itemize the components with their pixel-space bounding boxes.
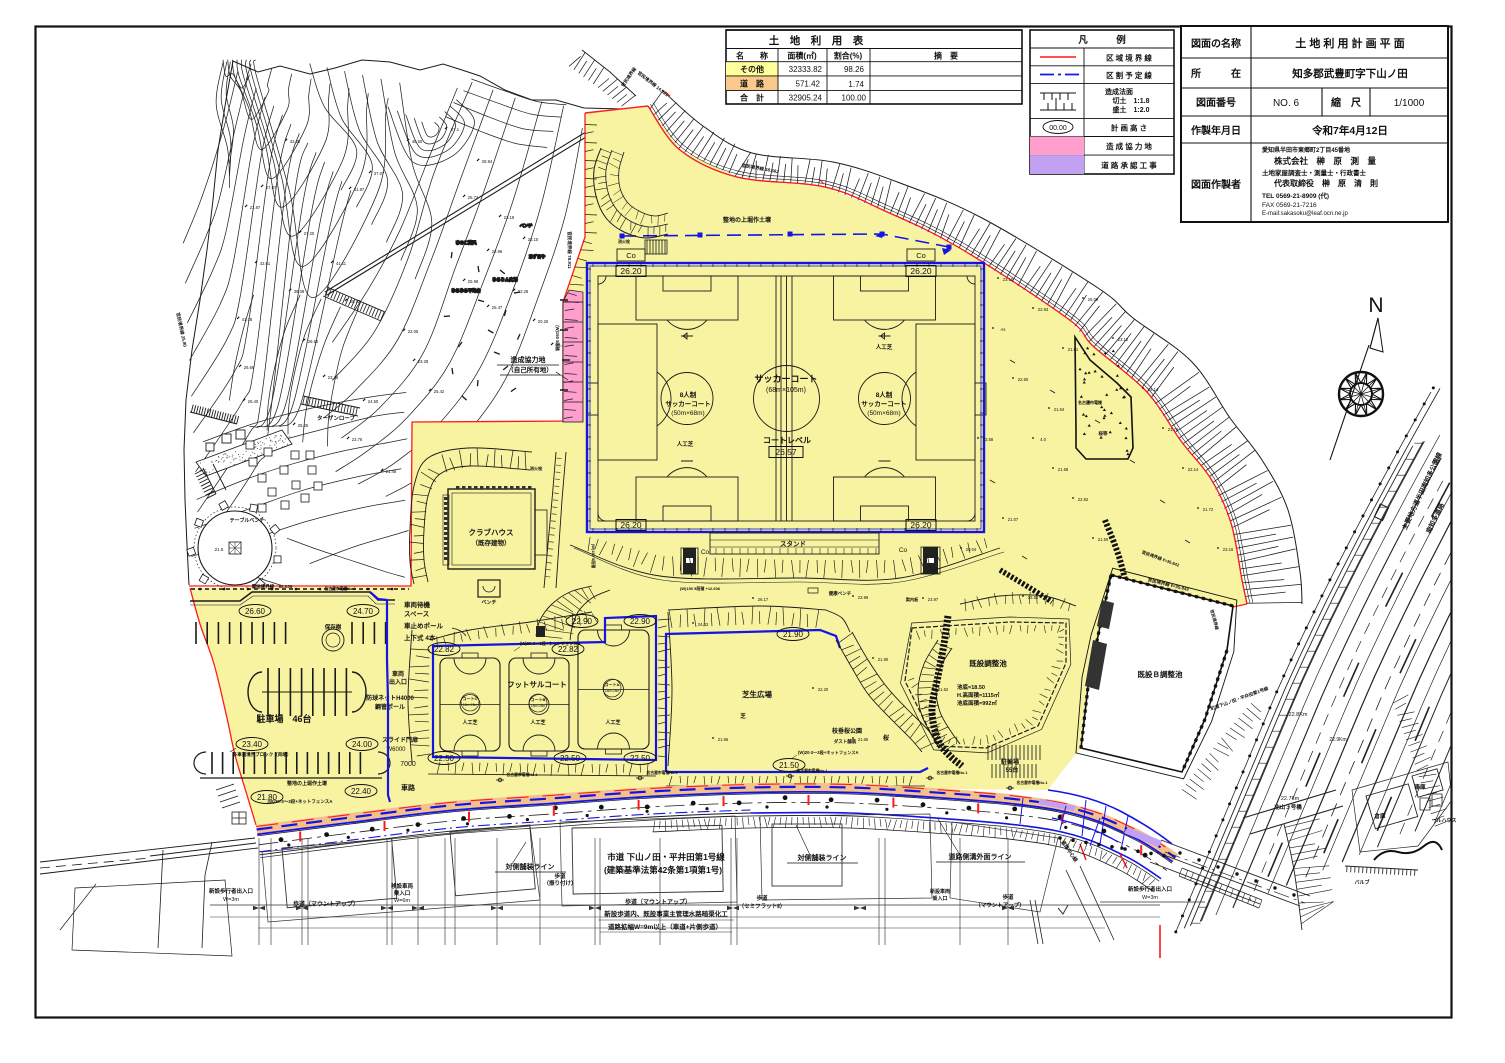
svg-text:面積(㎡): 面積(㎡) — [787, 51, 817, 61]
svg-text:スペース: スペース — [404, 610, 429, 618]
svg-text:作製年月日: 作製年月日 — [1191, 124, 1241, 137]
svg-text:TEL 0569-21-8909 (代): TEL 0569-21-8909 (代) — [1262, 191, 1329, 200]
svg-text:区 割 予 定 線: 区 割 予 定 線 — [1106, 70, 1152, 80]
svg-text:N: N — [1368, 294, 1383, 317]
svg-text:18m×28m: 18m×28m — [531, 704, 546, 708]
svg-text:名古屋市電棚: 名古屋市電棚 — [1078, 399, 1102, 405]
svg-text:27.1: 27.1 — [451, 127, 460, 132]
svg-text:縮 尺: 縮 尺 — [1331, 96, 1361, 109]
svg-text:新設歩行者出入口: 新設歩行者出入口 — [209, 887, 253, 895]
svg-text:整地の上堀作土壌: 整地の上堀作土壌 — [722, 216, 772, 224]
svg-text:E-mail:sakasoku@leaf.ocn.ne.jp: E-mail:sakasoku@leaf.ocn.ne.jp — [1262, 211, 1348, 217]
svg-text:コートB: コートB — [531, 697, 546, 702]
svg-text:クラブハウス: クラブハウス — [469, 527, 514, 537]
svg-text:鋼管ポール: 鋼管ポール — [374, 703, 405, 711]
svg-text:代表取締役 榊 原 清 則: 代表取締役 榊 原 清 則 — [1273, 178, 1378, 188]
svg-text:23.28: 23.28 — [418, 359, 429, 364]
svg-text:H.高面積=1115㎡: H.高面積=1115㎡ — [957, 691, 1000, 699]
svg-text:26.60: 26.60 — [245, 607, 266, 616]
svg-text:23.76: 23.76 — [352, 437, 363, 442]
svg-text:区 域 境 界 線: 区 域 境 界 線 — [1106, 53, 1152, 63]
svg-text:25.12: 25.12 — [350, 299, 361, 304]
svg-text:（セミフラットⅡ）: （セミフラットⅡ） — [739, 902, 786, 910]
svg-text:道 路: 道 路 — [740, 79, 765, 89]
svg-text:Co: Co — [626, 251, 636, 260]
svg-text:00.00: 00.00 — [1049, 125, 1067, 132]
svg-text:26.20: 26.20 — [620, 520, 642, 530]
svg-text:21.96: 21.96 — [718, 737, 729, 742]
svg-text:32333.82: 32333.82 — [789, 65, 823, 74]
svg-text:22.50: 22.50 — [434, 754, 455, 763]
svg-text:22.50: 22.50 — [630, 754, 651, 763]
svg-text:21.76: 21.76 — [1168, 427, 1179, 432]
svg-text:名 称: 名 称 — [736, 51, 768, 61]
svg-text:道路側溝外面ライン: 道路側溝外面ライン — [949, 852, 1012, 861]
svg-text:23.58: 23.58 — [983, 437, 994, 442]
svg-text:桜等: 桜等 — [1099, 430, 1108, 437]
svg-text:22.82: 22.82 — [558, 645, 579, 654]
svg-text:FAX 0569-21-7216: FAX 0569-21-7216 — [1262, 202, 1317, 209]
svg-text:歩道（マウントアップ）: 歩道（マウントアップ） — [293, 900, 359, 908]
svg-text:21.65: 21.65 — [858, 737, 869, 742]
svg-text:37.07: 37.07 — [374, 171, 385, 176]
svg-text:23.18: 23.18 — [1003, 277, 1014, 282]
svg-text:対側舗装ライン: 対側舗装ライン — [505, 862, 555, 871]
svg-text:枝垂桜公園: 枝垂桜公園 — [831, 727, 862, 735]
svg-text:41.11: 41.11 — [336, 261, 347, 266]
svg-text:23.16: 23.16 — [1223, 547, 1234, 552]
svg-text:市道 下山ノ田・平井田第1号線: 市道 下山ノ田・平井田第1号線 — [607, 852, 725, 862]
svg-text:人工芝: 人工芝 — [876, 343, 893, 351]
svg-text:23.18: 23.18 — [504, 215, 515, 220]
svg-text:26.17: 26.17 — [758, 597, 769, 602]
svg-text:25.25: 25.25 — [298, 423, 309, 428]
svg-text:盛土 1:2.0: 盛土 1:2.0 — [1113, 105, 1150, 114]
svg-text:人工芝: 人工芝 — [677, 440, 694, 448]
svg-text:消火栓: 消火栓 — [530, 465, 543, 472]
svg-text:As: As — [1001, 327, 1006, 332]
svg-text:造成協力地: 造成協力地 — [511, 355, 546, 364]
svg-text:割合(%): 割合(%) — [834, 51, 863, 61]
svg-text:歩道: 歩道 — [554, 872, 566, 880]
svg-text:芝: 芝 — [740, 712, 746, 720]
svg-text:車両待機: 車両待機 — [404, 600, 431, 609]
svg-text:(建築基準法第42条第1項第1号): (建築基準法第42条第1項第1号) — [604, 865, 722, 875]
svg-text:ダスト舗装: ダスト舗装 — [834, 738, 857, 745]
svg-text:26.57: 26.57 — [775, 447, 797, 457]
svg-text:22.8Km: 22.8Km — [1289, 712, 1308, 718]
svg-text:歩道: 歩道 — [1002, 893, 1014, 901]
svg-text:スタンド: スタンド — [780, 539, 806, 548]
svg-text:32905.24: 32905.24 — [789, 93, 823, 102]
svg-text:切土 1:1.8: 切土 1:1.8 — [1113, 96, 1150, 105]
svg-text:(68m×105m): (68m×105m) — [766, 387, 806, 394]
svg-text:22.20: 22.20 — [818, 687, 829, 692]
svg-text:Co: Co — [916, 251, 926, 260]
svg-text:健康ベンチ: 健康ベンチ — [829, 590, 852, 597]
svg-text:24.43: 24.43 — [698, 622, 709, 627]
svg-text:21.68: 21.68 — [1058, 467, 1069, 472]
svg-text:車路: 車路 — [401, 783, 416, 792]
svg-text:（自己所有地）: （自己所有地） — [507, 365, 553, 374]
svg-text:サッカーコート: サッカーコート — [665, 400, 711, 408]
svg-text:株式会社 榊 原 測 量: 株式会社 榊 原 測 量 — [1274, 156, 1377, 166]
svg-text:池底=18.50: 池底=18.50 — [957, 683, 985, 691]
svg-text:23.40: 23.40 — [242, 740, 263, 749]
svg-text:(W)20-3～3段+ネットフェンスA: (W)20-3～3段+ネットフェンスA — [520, 640, 581, 647]
svg-text:ゆらりん広場: ゆらりん広場 — [492, 276, 518, 283]
svg-text:保存樹: 保存樹 — [324, 623, 342, 631]
svg-text:ールハウス: ールハウス — [1431, 817, 1456, 824]
svg-text:(W)150 5段積: (W)150 5段積 — [554, 325, 561, 351]
svg-text:道 路 承 認 工 事: 道 路 承 認 工 事 — [1101, 160, 1157, 170]
svg-text:22.82: 22.82 — [1078, 497, 1089, 502]
svg-text:24.70: 24.70 — [353, 607, 374, 616]
svg-text:名古屋市電柵No.1: 名古屋市電柵No.1 — [506, 772, 537, 777]
svg-text:27.20: 27.20 — [304, 231, 315, 236]
svg-text:案内板: 案内板 — [905, 596, 919, 603]
svg-text:乗入口: 乗入口 — [394, 889, 411, 897]
svg-text:23.15: 23.15 — [528, 237, 539, 242]
svg-text:27.87: 27.87 — [266, 185, 277, 190]
svg-text:Co: Co — [899, 547, 908, 554]
svg-text:23.99: 23.99 — [858, 595, 869, 600]
svg-text:凡 例: 凡 例 — [1077, 34, 1126, 46]
svg-text:駐輪場: 駐輪場 — [1001, 758, 1019, 766]
svg-text:（マウントアップ）: （マウントアップ） — [975, 901, 1025, 909]
svg-text:コートレベル: コートレベル — [763, 436, 811, 445]
svg-text:7000: 7000 — [400, 761, 416, 768]
svg-text:車止めポール: 車止めポール — [404, 621, 444, 630]
svg-text:人工芝: 人工芝 — [604, 719, 620, 726]
svg-text:22.93: 22.93 — [1038, 307, 1049, 312]
svg-text:24.50: 24.50 — [368, 399, 379, 404]
svg-text:26.20: 26.20 — [910, 520, 932, 530]
svg-text:40.50: 40.50 — [412, 139, 423, 144]
svg-text:22.82: 22.82 — [434, 645, 455, 654]
svg-text:新設歩行者出入口: 新設歩行者出入口 — [1128, 885, 1172, 893]
svg-text:571.42: 571.42 — [796, 80, 821, 89]
svg-text:98.26: 98.26 — [844, 65, 865, 74]
svg-text:(W)20-3～3段+ネットフェンスA: (W)20-3～3段+ネットフェンスA — [798, 749, 859, 756]
svg-text:バルブ: バルブ — [1354, 879, 1369, 886]
svg-text:55台: 55台 — [1006, 766, 1019, 774]
svg-text:28.94: 28.94 — [482, 159, 493, 164]
svg-text:新設歩道内、既設事業主管理水路暗渠化工: 新設歩道内、既設事業主管理水路暗渠化工 — [604, 909, 728, 918]
svg-text:21.5: 21.5 — [215, 547, 224, 552]
svg-text:きのこ遊具: きのこ遊具 — [456, 239, 478, 246]
svg-text:駐車場 46台: 駐車場 46台 — [256, 713, 311, 724]
svg-text:23.97: 23.97 — [928, 597, 939, 602]
svg-text:既設調整池: 既設調整池 — [969, 658, 1007, 668]
svg-text:26.20: 26.20 — [910, 266, 932, 276]
svg-text:(50m×68m): (50m×68m) — [671, 410, 704, 417]
svg-text:25.98: 25.98 — [468, 279, 479, 284]
svg-text:土 地 利 用 計 画 平 面: 土 地 利 用 計 画 平 面 — [1295, 36, 1404, 50]
svg-text:25.09: 25.09 — [1088, 297, 1099, 302]
svg-text:1.74: 1.74 — [848, 80, 864, 89]
svg-text:25.47: 25.47 — [492, 305, 503, 310]
svg-text:22.50: 22.50 — [560, 754, 581, 763]
svg-text:(W)20-3～3段+ネットフェンスA: (W)20-3～3段+ネットフェンスA — [267, 798, 333, 805]
svg-text:22.9Km: 22.9Km — [1329, 737, 1346, 743]
svg-text:多車道境界ブロック（両端）: 多車道境界ブロック（両端） — [233, 751, 292, 758]
svg-text:Co: Co — [701, 549, 710, 556]
svg-text:令和7年4月12日: 令和7年4月12日 — [1311, 124, 1388, 137]
svg-text:(W)150 5段積 +12.606: (W)150 5段積 +12.606 — [680, 585, 721, 591]
svg-text:22.96: 22.96 — [492, 249, 503, 254]
svg-text:図面の名称: 図面の名称 — [1191, 37, 1241, 50]
svg-text:摘 要: 摘 要 — [934, 51, 958, 61]
svg-text:ターザンロープ: ターザンロープ — [317, 414, 356, 422]
svg-text:新設車両: 新設車両 — [930, 888, 950, 895]
svg-text:桜: 桜 — [883, 734, 889, 742]
svg-text:倉庫: 倉庫 — [1373, 812, 1386, 820]
svg-text:8人制: 8人制 — [876, 390, 893, 399]
svg-text:その他: その他 — [740, 64, 764, 74]
svg-text:20.26: 20.26 — [538, 319, 549, 324]
svg-text:対側舗装ライン: 対側舗装ライン — [797, 853, 847, 862]
svg-text:土 地 利 用 表: 土 地 利 用 表 — [769, 34, 864, 47]
svg-text:26.20: 26.20 — [620, 266, 642, 276]
svg-text:W=3m: W=3m — [1142, 895, 1158, 901]
svg-text:ベンチ: ベンチ — [481, 600, 496, 606]
svg-text:池底面積=992㎡: 池底面積=992㎡ — [957, 699, 997, 707]
svg-text:コートC: コートC — [463, 696, 478, 701]
svg-text:あずまや: あずまや — [529, 253, 546, 260]
svg-text:サッカーコート: サッカーコート — [861, 400, 907, 408]
svg-text:NO. 6: NO. 6 — [1273, 98, 1300, 109]
svg-text:道路拡幅W=9m以上（車道+片側歩道）: 道路拡幅W=9m以上（車道+片側歩道） — [608, 922, 722, 931]
svg-text:名古屋市電柵No.1: 名古屋市電柵No.1 — [796, 768, 827, 773]
svg-text:図面番号: 図面番号 — [1196, 96, 1236, 109]
svg-text:W6000: W6000 — [386, 747, 406, 753]
svg-text:25.42: 25.42 — [434, 389, 445, 394]
svg-text:22.83: 22.83 — [1028, 595, 1039, 600]
svg-text:計 画 高 さ: 計 画 高 さ — [1111, 123, 1147, 133]
svg-text:（既存建物）: （既存建物） — [472, 538, 511, 547]
svg-text:21.48: 21.48 — [386, 469, 397, 474]
svg-text:コートA: コートA — [605, 682, 620, 687]
svg-text:21.64: 21.64 — [1054, 407, 1065, 412]
svg-text:24.00: 24.00 — [352, 740, 373, 749]
svg-text:22.90: 22.90 — [630, 617, 651, 626]
svg-text:図面作製者: 図面作製者 — [1191, 178, 1241, 191]
svg-text:100.00: 100.00 — [842, 93, 867, 102]
svg-text:名古屋市電柵No.1: 名古屋市電柵No.1 — [936, 770, 967, 775]
svg-text:21.07: 21.07 — [1008, 517, 1019, 522]
svg-text:名古屋市電柵No.1: 名古屋市電柵No.1 — [646, 770, 677, 775]
svg-text:26.66: 26.66 — [244, 365, 255, 370]
svg-text:芝生広場: 芝生広場 — [742, 689, 772, 699]
svg-text:整地の上堀作土壌: 整地の上堀作土壌 — [286, 780, 328, 787]
svg-text:21.50: 21.50 — [1098, 537, 1109, 542]
svg-text:22.14: 22.14 — [1188, 467, 1199, 472]
svg-text:合 計: 合 計 — [739, 92, 764, 102]
svg-text:人工芝: 人工芝 — [461, 719, 477, 726]
svg-text:42.61: 42.61 — [260, 261, 271, 266]
svg-text:21.72: 21.72 — [1203, 507, 1214, 512]
svg-text:(50m×68m): (50m×68m) — [867, 410, 900, 417]
svg-text:22.40: 22.40 — [351, 787, 372, 796]
svg-text:18m×28m: 18m×28m — [605, 689, 620, 693]
svg-text:移設車両: 移設車両 — [391, 882, 414, 890]
svg-text:23.12: 23.12 — [1118, 337, 1129, 342]
svg-text:北山３号橋: 北山３号橋 — [1274, 803, 1302, 811]
svg-text:消火栓: 消火栓 — [618, 238, 630, 244]
svg-text:26.40: 26.40 — [248, 399, 259, 404]
svg-text:21.90: 21.90 — [878, 657, 889, 662]
svg-text:31.87: 31.87 — [354, 187, 365, 192]
svg-text:41.18: 41.18 — [242, 317, 253, 322]
svg-text:18m×28m: 18m×28m — [463, 703, 478, 707]
svg-text:（振り付け）: （振り付け） — [543, 879, 576, 887]
svg-text:1/1000: 1/1000 — [1394, 98, 1425, 109]
svg-text:22.05: 22.05 — [408, 329, 419, 334]
svg-text:42.25: 42.25 — [290, 139, 301, 144]
svg-text:38.08: 38.08 — [294, 289, 305, 294]
svg-text:出入口: 出入口 — [389, 678, 407, 686]
svg-text:防球ネットH4000: 防球ネットH4000 — [366, 694, 414, 702]
svg-text:フットサルコート: フットサルコート — [507, 680, 567, 689]
svg-text:20.04: 20.04 — [966, 547, 977, 552]
svg-text:21.87: 21.87 — [250, 205, 261, 210]
svg-text:(W)150 5段積: (W)150 5段積 — [591, 544, 597, 569]
svg-text:土地家屋調査士・測量士・行政書士: 土地家屋調査士・測量士・行政書士 — [1262, 168, 1367, 177]
svg-text:人工芝: 人工芝 — [529, 719, 545, 726]
svg-text:造成法面: 造成法面 — [1105, 87, 1133, 96]
svg-text:車両: 車両 — [392, 670, 404, 678]
svg-text:テーブルベンチ: テーブルベンチ — [230, 517, 265, 524]
svg-text:名古屋市電柵No.1: 名古屋市電柵No.1 — [1016, 780, 1047, 785]
svg-text:22.60: 22.60 — [1018, 377, 1029, 382]
svg-text:歩道: 歩道 — [756, 894, 768, 902]
svg-text:乗入口: 乗入口 — [932, 895, 947, 902]
svg-text:W=6m: W=6m — [394, 898, 410, 904]
svg-text:サッカーコート: サッカーコート — [754, 374, 817, 384]
svg-text:愛知県半田市東郷町2丁目45番地: 愛知県半田市東郷町2丁目45番地 — [1262, 146, 1350, 154]
svg-text:26.52: 26.52 — [308, 339, 319, 344]
svg-text:24.14: 24.14 — [1148, 387, 1159, 392]
svg-text:23.36: 23.36 — [328, 375, 339, 380]
svg-text:造 成 協 力 地: 造 成 協 力 地 — [1106, 141, 1152, 151]
svg-text:21.62: 21.62 — [938, 687, 949, 692]
svg-text:4.0: 4.0 — [1040, 437, 1046, 442]
svg-text:8人制: 8人制 — [680, 390, 697, 399]
svg-text:25.72: 25.72 — [468, 195, 479, 200]
svg-text:所 在: 所 在 — [1191, 67, 1241, 80]
svg-text:22.76m: 22.76m — [1281, 796, 1300, 802]
svg-text:車庫: 車庫 — [1414, 783, 1426, 791]
svg-text:21.90: 21.90 — [783, 630, 804, 639]
svg-text:歩道（マウントアップ）: 歩道（マウントアップ） — [625, 898, 691, 906]
svg-text:上下式 4本: 上下式 4本 — [404, 633, 436, 642]
svg-text:知多郡武豊町字下山ノ田: 知多郡武豊町字下山ノ田 — [1292, 67, 1408, 80]
svg-text:21.81: 21.81 — [1068, 347, 1079, 352]
svg-text:W=3m: W=3m — [223, 897, 239, 903]
svg-text:官民境界線 78.911: 官民境界線 78.911 — [566, 231, 573, 269]
svg-text:ゆらゆら平均台: ゆらゆら平均台 — [451, 287, 480, 294]
svg-text:既設Ｂ調整池: 既設Ｂ調整池 — [1138, 669, 1183, 679]
